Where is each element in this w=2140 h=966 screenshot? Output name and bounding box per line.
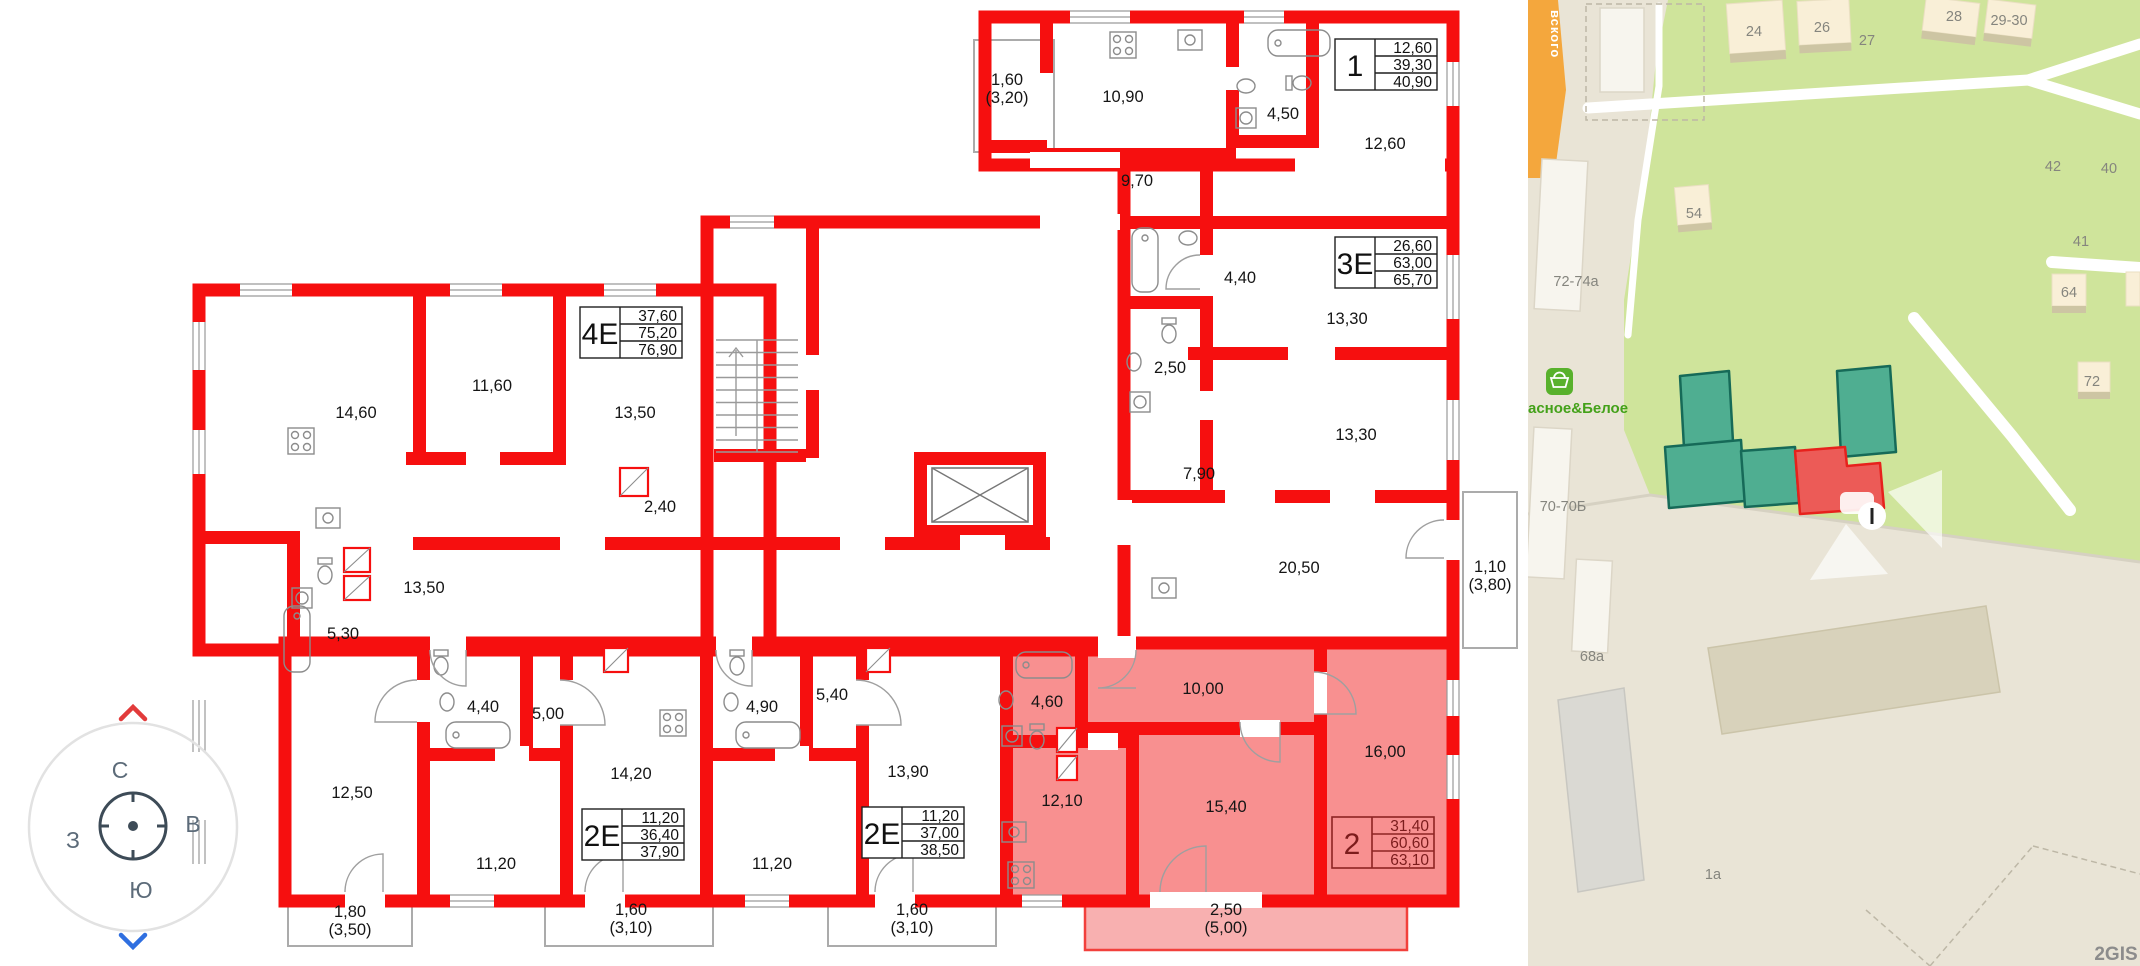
- compass-east-label: В: [185, 811, 200, 837]
- building-label: 68а: [1580, 649, 1605, 665]
- compass-north-label: С: [112, 757, 129, 783]
- building-label: 72: [2084, 374, 2100, 390]
- complex-section[interactable]: [1680, 371, 1733, 448]
- apartment-info-3e[interactable]: 3Е 26,60 63,00 65,70: [1335, 237, 1437, 289]
- room-area-label: 12,50: [331, 784, 372, 802]
- room-area-label: 13,90: [887, 763, 928, 781]
- apartment-area-total: 40,90: [1393, 74, 1432, 91]
- room-area-label: 15,40: [1205, 798, 1246, 816]
- room-area-label: 9,70: [1121, 172, 1153, 190]
- room-area-label: 4,50: [1267, 105, 1299, 123]
- room-area-label: 20,50: [1278, 559, 1319, 577]
- room-area-label: 13,30: [1326, 310, 1367, 328]
- street-name-label: вского: [1548, 10, 1563, 58]
- room-area-label: 4,60: [1031, 693, 1063, 711]
- room-area-label: 5,00: [532, 705, 564, 723]
- room-area-label: (3,50): [328, 921, 371, 939]
- apartment-info-2e-b[interactable]: 2Е 11,20 37,00 38,50: [862, 807, 964, 859]
- room-area-label: (3,80): [1468, 576, 1511, 594]
- elevator: [932, 468, 1028, 522]
- building-label: 24: [1746, 24, 1762, 40]
- room-area-label: (5,00): [1204, 919, 1247, 937]
- apartment-area-main: 60,60: [1390, 835, 1429, 852]
- room-area-label: 10,90: [1102, 88, 1143, 106]
- room-area-label: 4,90: [746, 698, 778, 716]
- room-area-label: 5,40: [816, 686, 848, 704]
- room-area-label: 1,60: [615, 901, 647, 919]
- building-label: 27: [1859, 33, 1875, 49]
- room-area-label: 4,40: [467, 698, 499, 716]
- complex-section[interactable]: [1837, 366, 1896, 457]
- apartment-type: 2Е: [584, 820, 621, 853]
- apartment-area-living: 12,60: [1393, 40, 1432, 57]
- apartment-area-total: 38,50: [920, 842, 959, 859]
- room-area-label: 2,40: [644, 498, 676, 516]
- room-area-label: 1,60: [991, 71, 1023, 89]
- apartment-area-main: 37,00: [920, 825, 959, 842]
- room-area-label: 12,60: [1364, 135, 1405, 153]
- room-area-label: 14,60: [335, 404, 376, 422]
- apartment-area-main: 63,00: [1393, 255, 1432, 272]
- apartment-area-living: 31,40: [1390, 818, 1429, 835]
- apartment-info-1[interactable]: 1 12,60 39,30 40,90: [1335, 39, 1437, 91]
- building-label: 70-70Б: [1540, 499, 1587, 515]
- apartment-area-total: 65,70: [1393, 272, 1432, 289]
- room-area-label: 1,60: [896, 901, 928, 919]
- room-area-label: 14,20: [610, 765, 651, 783]
- map-provider-logo[interactable]: 2GIS: [2094, 944, 2137, 965]
- room-area-label: 4,40: [1224, 269, 1256, 287]
- room-area-label: 12,10: [1041, 792, 1082, 810]
- room-area-label: 11,60: [472, 377, 512, 395]
- apartment-area-living: 37,60: [638, 308, 677, 325]
- room-area-label: (3,10): [609, 919, 652, 937]
- building-label: 41: [2073, 234, 2089, 250]
- apartment-type: 4Е: [582, 318, 619, 351]
- building-label: 72-74а: [1553, 274, 1599, 290]
- room-area-label: 13,50: [614, 404, 655, 422]
- apartment-info-2-selected[interactable]: 2 31,40 60,60 63,10: [1332, 817, 1434, 869]
- building-label: 40: [2101, 161, 2117, 177]
- apartment-area-living: 11,20: [921, 808, 959, 825]
- apartment-area-living: 26,60: [1393, 238, 1432, 255]
- apartment-area-main: 39,30: [1393, 57, 1432, 74]
- room-area-label: 1,80: [334, 903, 366, 921]
- compass-north-arrow-icon: [121, 707, 145, 719]
- floor-plan-canvas: 1 12,60 39,30 40,90 3Е 26,60 63,00 65,70…: [0, 0, 1528, 966]
- apartment-type: 2: [1344, 828, 1361, 861]
- apartment-area-total: 76,90: [638, 342, 677, 359]
- compass-south-label: Ю: [129, 877, 152, 903]
- room-area-label: 5,30: [327, 625, 359, 643]
- room-area-label: (3,20): [985, 89, 1028, 107]
- building-label: 42: [2045, 159, 2061, 175]
- apartment-type: 1: [1347, 50, 1364, 83]
- room-area-label: (3,10): [890, 919, 933, 937]
- building-label: 29-30: [1990, 13, 2027, 29]
- room-area-label: 10,00: [1182, 680, 1223, 698]
- compass-south-arrow-icon: [121, 935, 145, 947]
- room-area-label: 13,50: [403, 579, 444, 597]
- apartment-area-living: 11,20: [641, 810, 679, 827]
- room-area-label: 1,10: [1474, 558, 1506, 576]
- compass-west-label: З: [66, 827, 80, 853]
- building-label: 28: [1946, 9, 1962, 25]
- map-canvas[interactable]: вского: [1528, 0, 2140, 966]
- apartment-info-2e-a[interactable]: 2Е 11,20 36,40 37,90: [582, 809, 684, 861]
- complex-section[interactable]: [1665, 440, 1745, 508]
- room-area-label: 16,00: [1364, 743, 1405, 761]
- building-label: 64: [2061, 285, 2077, 301]
- room-area-label: 2,50: [1210, 901, 1242, 919]
- building-label: 54: [1686, 206, 1702, 222]
- room-area-label: 7,90: [1183, 465, 1215, 483]
- room-area-label: 13,30: [1335, 426, 1376, 444]
- room-area-label: 2,50: [1154, 359, 1186, 377]
- apartment-type: 2Е: [864, 818, 901, 851]
- floorplan-page: 1 12,60 39,30 40,90 3Е 26,60 63,00 65,70…: [0, 0, 2140, 966]
- room-area-label: 11,20: [476, 855, 516, 873]
- complex-section[interactable]: [1741, 447, 1799, 507]
- apartment-area-main: 75,20: [638, 325, 677, 342]
- apartment-info-4e[interactable]: 4Е 37,60 75,20 76,90: [580, 307, 682, 359]
- compass: С В З Ю: [29, 707, 237, 947]
- shop-name-label: асное&Белое: [1528, 400, 1628, 417]
- building-label: 1а: [1705, 867, 1722, 883]
- apartment-area-main: 36,40: [640, 827, 679, 844]
- building-label: 26: [1814, 20, 1830, 36]
- apartment-type: 3Е: [1337, 248, 1374, 281]
- apartment-area-total: 63,10: [1390, 852, 1429, 869]
- apartment-area-total: 37,90: [640, 844, 679, 861]
- room-area-label: 11,20: [752, 855, 792, 873]
